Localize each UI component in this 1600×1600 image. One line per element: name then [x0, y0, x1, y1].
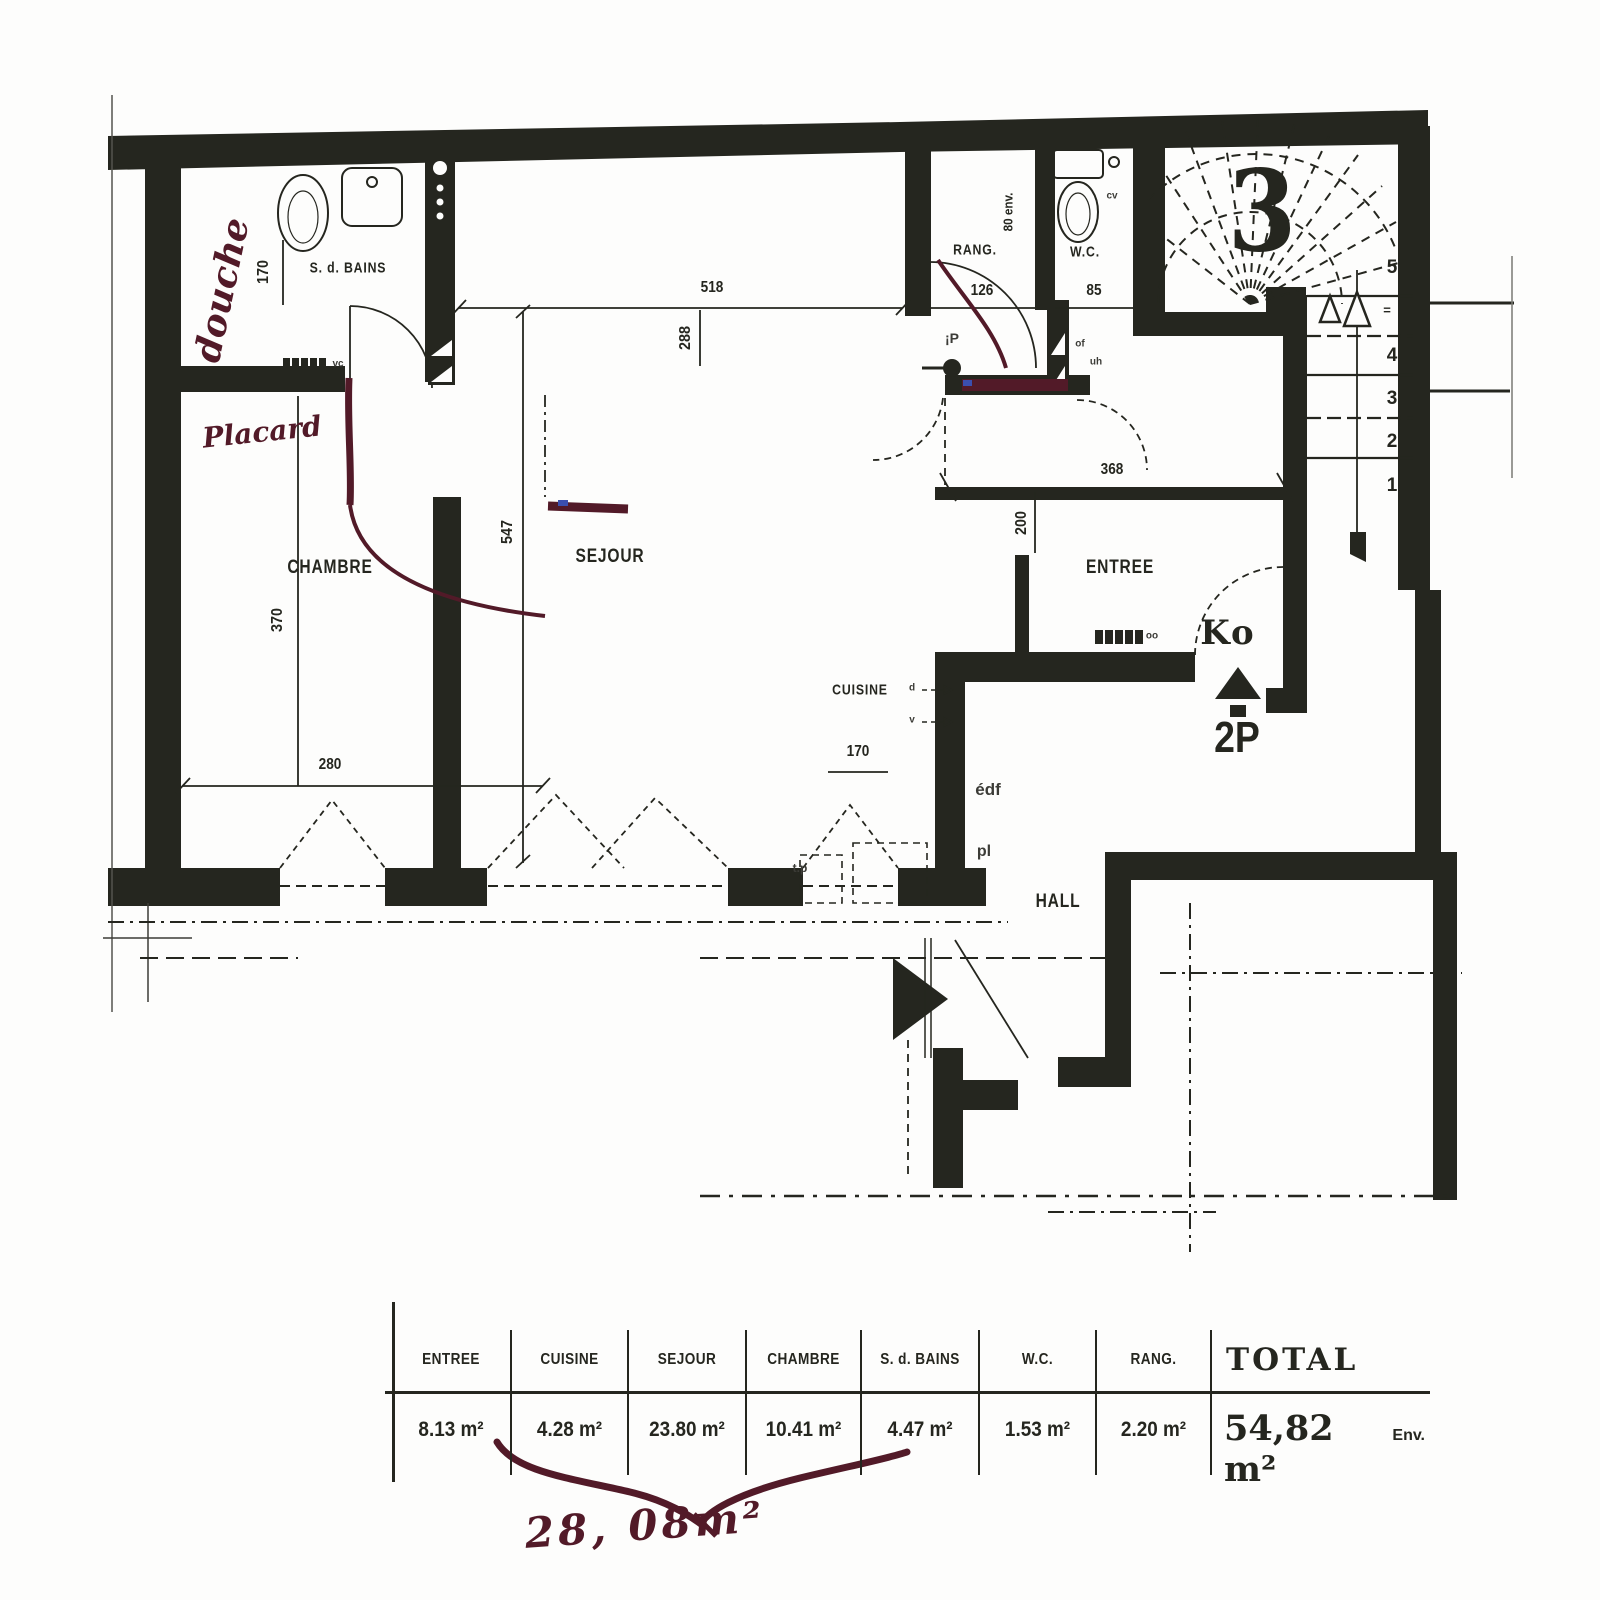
- sill-hatch: [1125, 630, 1133, 644]
- table-column-rang: RANG. 2.20 m²: [1095, 1330, 1210, 1475]
- column-header: S. d. BAINS: [871, 1330, 970, 1390]
- table-column-chambre: CHAMBRE 10.41 m²: [745, 1330, 860, 1475]
- floorplan-page: S. d. BAINS CHAMBRE SEJOUR CUISINE ENTRE…: [0, 0, 1600, 1600]
- sill-hatch-rows: [283, 358, 1143, 644]
- mark-of: of: [1075, 339, 1084, 350]
- storage-door-arc: [930, 262, 1036, 368]
- dimension-lines: [176, 240, 1293, 868]
- column-header: CUISINE: [521, 1330, 619, 1390]
- dim-170-kitchen: 170: [847, 743, 870, 761]
- column-value: 8.13 m²: [398, 1390, 504, 1470]
- dim-80-env: 80 env.: [1001, 193, 1016, 232]
- living-door-arc: [873, 398, 943, 460]
- dim-518: 518: [701, 279, 724, 297]
- up-arrow-triangle: [1215, 667, 1261, 699]
- sill-hatch: [292, 358, 299, 371]
- blue-speck: [558, 500, 568, 506]
- sill-hatch: [1105, 630, 1113, 644]
- window-swing: [280, 800, 385, 868]
- stair-step-4: 4: [1387, 345, 1398, 367]
- entry-door-arc: [1077, 400, 1147, 470]
- floor-number: 3: [1228, 147, 1297, 278]
- window-swing: [803, 805, 898, 868]
- table-column-wc: W.C. 1.53 m²: [978, 1330, 1095, 1475]
- wc-tank: [1053, 150, 1103, 178]
- dim-126: 126: [971, 282, 994, 300]
- column-header: CHAMBRE: [755, 1330, 851, 1390]
- room-label-living: SEJOUR: [576, 546, 645, 568]
- dim-547: 547: [499, 520, 517, 544]
- column-value: 4.28 m²: [518, 1390, 622, 1470]
- column-value: 2.20 m²: [1103, 1390, 1205, 1470]
- column-glyph: [437, 185, 444, 192]
- entrance-arrow: [893, 958, 948, 1040]
- room-label-storage: RANG.: [953, 242, 997, 259]
- bathroom-fixtures: [278, 168, 402, 251]
- wc-bowl-inner: [1066, 193, 1090, 235]
- mark-edf: édf: [975, 780, 1001, 800]
- sink-faucet: [367, 177, 377, 187]
- stair-step-3: 3: [1387, 388, 1398, 410]
- bidet: [278, 175, 328, 251]
- room-label-kitchen: CUISINE: [832, 682, 888, 699]
- column-glyph: [437, 213, 444, 220]
- red-closet-stroke: [349, 378, 351, 505]
- mark-cv: cv: [1106, 191, 1117, 202]
- mark-p: ¡P: [945, 330, 959, 346]
- total-value: 54,82 m²: [1224, 1408, 1382, 1490]
- door-stop: [943, 359, 961, 377]
- window-swing: [592, 798, 728, 868]
- room-label-bedroom: CHAMBRE: [287, 557, 372, 579]
- window-swing: [488, 795, 624, 868]
- column-header: SEJOUR: [638, 1330, 737, 1390]
- column-value: 1.53 m²: [986, 1390, 1090, 1470]
- red-door-tip: [548, 506, 628, 509]
- bidet-bowl: [288, 191, 318, 243]
- sill-hatch: [301, 358, 308, 371]
- dim-280: 280: [319, 756, 342, 774]
- dim-170-bath: 170: [255, 260, 273, 284]
- stair-step-1: 1: [1387, 475, 1398, 497]
- mark-kitchen-d: d: [909, 683, 915, 694]
- column-glyph: [437, 199, 444, 206]
- dim-288: 288: [677, 326, 695, 350]
- mark-oo: oo: [1146, 631, 1158, 642]
- dim-368: 368: [1101, 461, 1124, 479]
- dim-200: 200: [1013, 511, 1031, 535]
- table-column-sdbains: S. d. BAINS 4.47 m²: [860, 1330, 978, 1475]
- mark-vc: vc: [332, 359, 343, 370]
- bathroom-door-arc: [350, 306, 432, 388]
- interior-walls: [145, 126, 1285, 870]
- column-glyph: [433, 161, 447, 175]
- total-header: TOTAL: [1212, 1330, 1425, 1390]
- column-header: W.C.: [989, 1330, 1087, 1390]
- dim-85: 85: [1086, 282, 1101, 300]
- sill-hatch: [319, 358, 326, 371]
- wc-valve: [1109, 157, 1119, 167]
- table-column-total: TOTAL 54,82 m² Env.: [1210, 1330, 1425, 1475]
- hall-walls: [933, 852, 1457, 1188]
- wc-bowl: [1058, 182, 1098, 242]
- total-value-row: 54,82 m² Env.: [1212, 1390, 1425, 1470]
- stair-arrow-flag: [1350, 532, 1366, 562]
- stair-step-5: 5: [1387, 257, 1398, 279]
- column-value: 4.47 m²: [868, 1390, 972, 1470]
- room-label-entry: ENTREE: [1086, 557, 1154, 579]
- room-label-hall: HALL: [1036, 891, 1081, 913]
- direction-triangle: [1320, 296, 1340, 322]
- stair-step-2: 2: [1387, 431, 1398, 453]
- column-value: 23.80 m²: [635, 1390, 739, 1470]
- column-header: RANG.: [1105, 1330, 1201, 1390]
- table-column-cuisine: CUISINE 4.28 m²: [510, 1330, 627, 1475]
- table-separator-line: [385, 1391, 1430, 1394]
- mark-kitchen-v: v: [909, 715, 915, 726]
- table-column-sejour: SEJOUR 23.80 m²: [627, 1330, 745, 1475]
- blue-speck: [963, 380, 972, 386]
- sill-hatch: [310, 358, 317, 371]
- column-header: ENTREE: [401, 1330, 501, 1390]
- room-label-bathroom: S. d. BAINS: [310, 260, 387, 277]
- total-suffix: Env.: [1392, 1427, 1425, 1445]
- sill-hatch: [283, 358, 290, 371]
- red-storage-arc: [938, 260, 1006, 368]
- room-label-wc: W.C.: [1070, 244, 1100, 261]
- unit-type-label: 2P: [1214, 713, 1260, 763]
- dim-370: 370: [269, 608, 287, 632]
- stair-dots: =: [1383, 303, 1391, 318]
- sill-hatch: [1115, 630, 1123, 644]
- mark-pl: pl: [977, 843, 991, 861]
- sill-hatch: [1135, 630, 1143, 644]
- area-table: ENTREE 8.13 m² CUISINE 4.28 m² SEJOUR 23…: [392, 1330, 1425, 1475]
- unit-code-label: Ko: [1200, 613, 1255, 653]
- column-value: 10.41 m²: [753, 1390, 855, 1470]
- sill-hatch: [1095, 630, 1103, 644]
- mark-tp: t.p: [793, 861, 808, 875]
- table-column-entree: ENTREE 8.13 m²: [392, 1330, 510, 1475]
- mark-uh: uh: [1090, 357, 1102, 368]
